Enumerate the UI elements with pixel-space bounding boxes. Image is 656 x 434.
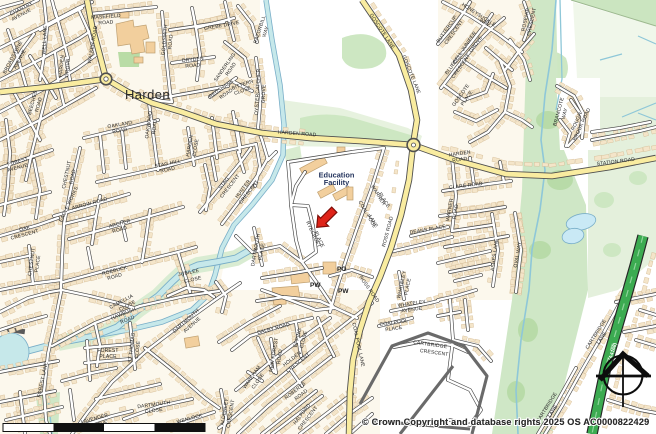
svg-text:PW: PW [310, 282, 321, 289]
svg-text:Facility: Facility [324, 178, 350, 187]
svg-text:PW: PW [338, 288, 349, 295]
svg-text:© Crown Copyright and database: © Crown Copyright and database rights 20… [362, 417, 649, 427]
svg-text:PO: PO [337, 266, 346, 273]
svg-text:PLACE: PLACE [99, 354, 117, 360]
svg-text:ROAD: ROAD [98, 19, 114, 26]
svg-text:Harden: Harden [125, 87, 170, 102]
svg-text:GROVE: GROVE [261, 84, 268, 104]
